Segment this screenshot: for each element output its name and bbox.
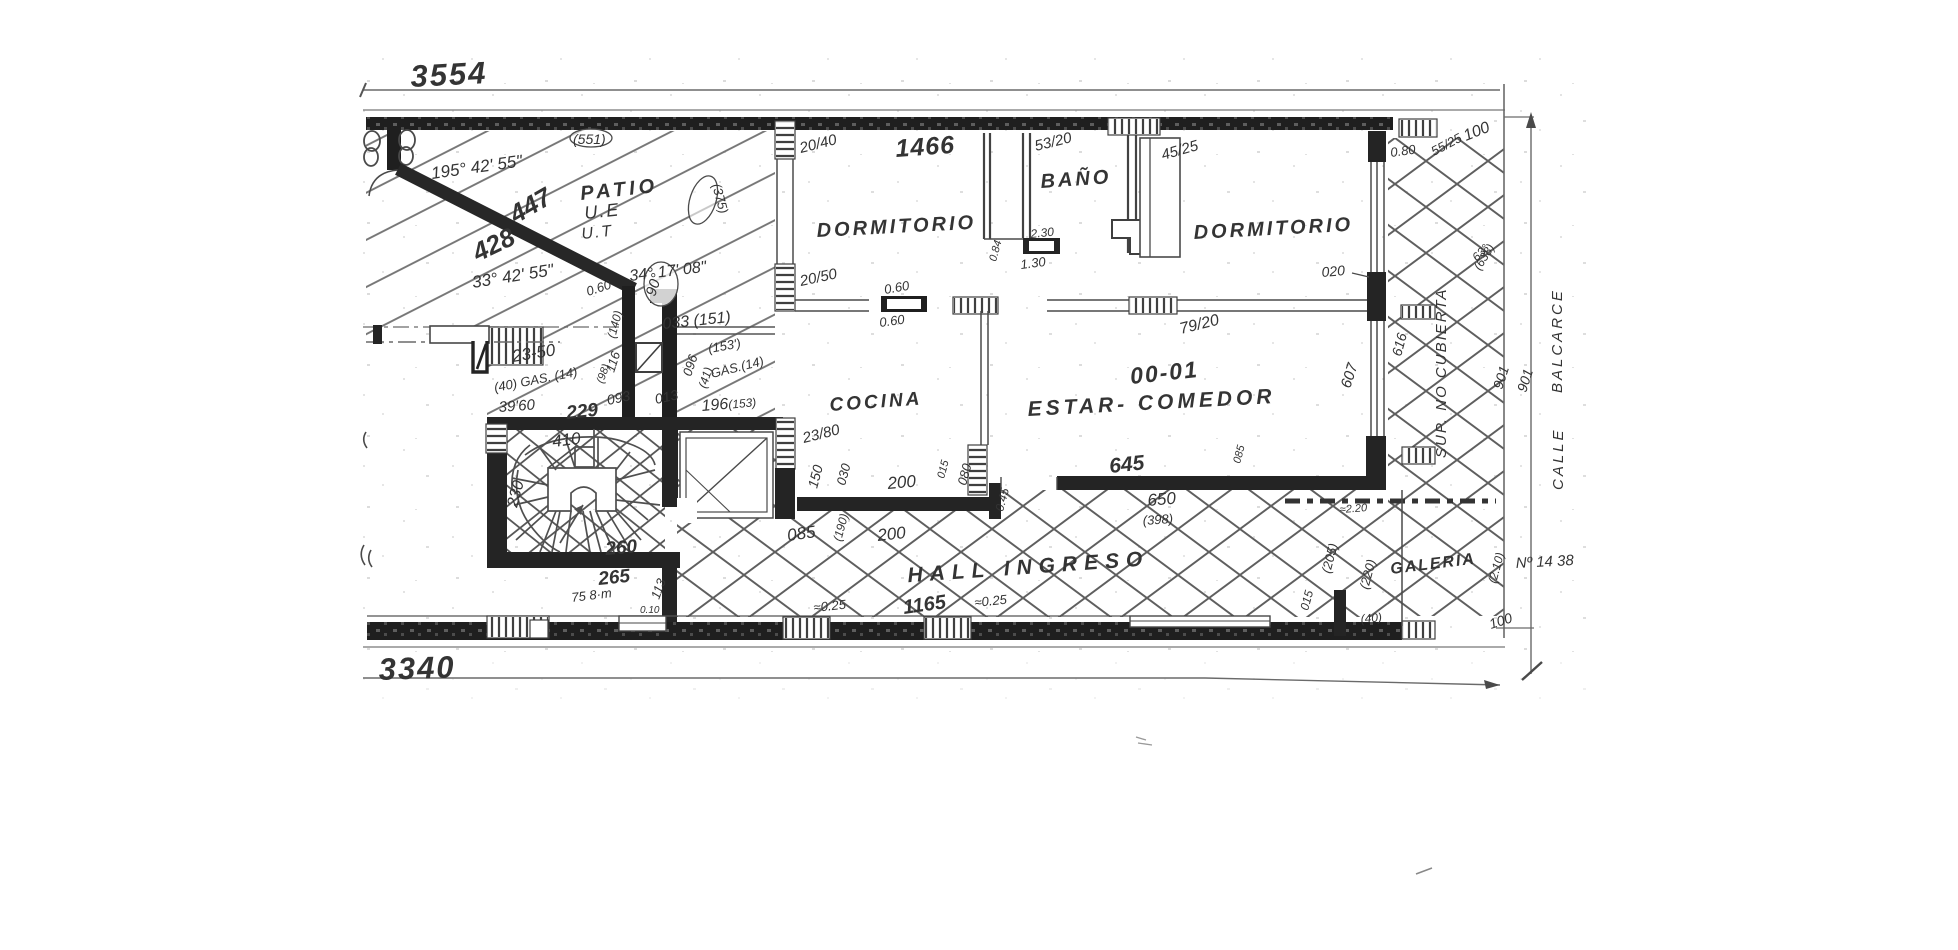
svg-text:Nº 14 38: Nº 14 38 [1515,552,1574,572]
svg-text:260: 260 [604,536,639,560]
svg-text:1.30: 1.30 [1020,254,1048,272]
svg-text:410: 410 [551,429,582,451]
svg-text:U.E: U.E [583,199,621,223]
svg-text:1466: 1466 [894,131,956,163]
svg-text:≈2.20: ≈2.20 [1339,502,1368,516]
svg-text:U.T: U.T [581,223,614,243]
svg-text:085: 085 [786,522,817,545]
svg-text:0.10: 0.10 [640,605,660,616]
svg-text:(40): (40) [1360,610,1382,626]
svg-text:CALLE: CALLE [1550,427,1567,490]
svg-text:200: 200 [875,523,907,545]
svg-text:(398): (398) [1142,511,1173,528]
svg-text:SUP. NO CUBIERTA: SUP. NO CUBIERTA [1433,288,1450,458]
svg-text:2.30: 2.30 [1029,225,1055,242]
svg-text:650: 650 [1147,489,1177,510]
svg-text:BALCARCE: BALCARCE [1549,288,1566,393]
svg-text:200: 200 [886,472,917,494]
svg-text:3554: 3554 [410,55,489,94]
svg-text:645: 645 [1108,451,1146,478]
svg-text:020: 020 [1321,262,1346,280]
svg-text:229: 229 [564,400,599,424]
svg-text:(551): (551) [573,131,606,147]
svg-text:3340: 3340 [378,649,456,687]
svg-text:39'60: 39'60 [498,396,536,416]
